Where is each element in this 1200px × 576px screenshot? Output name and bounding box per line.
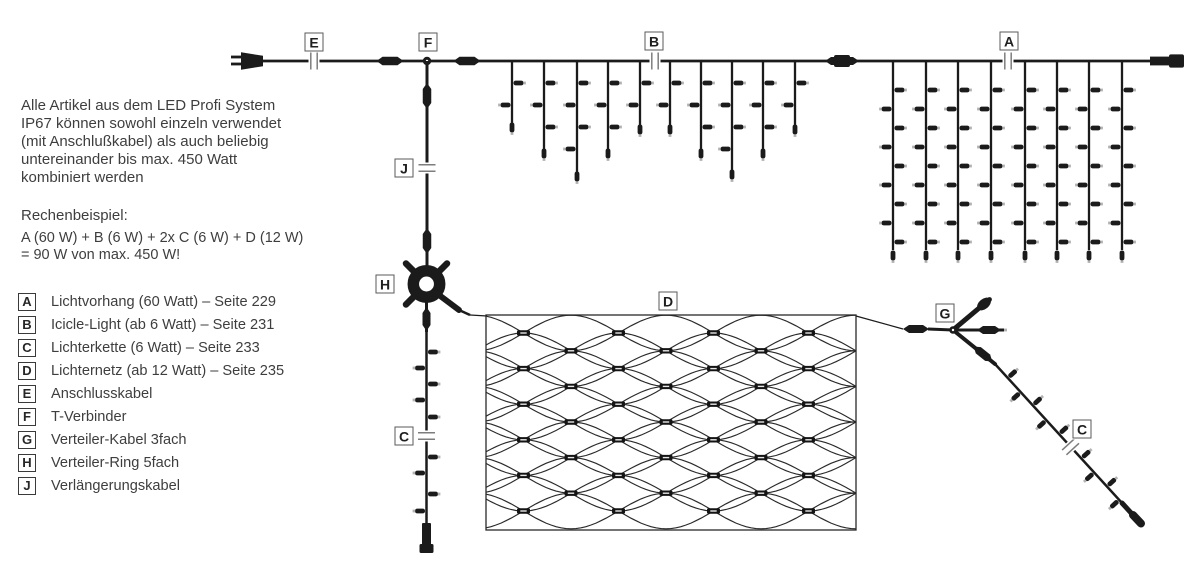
verlaengerungskabel-j [417,61,437,266]
led-bulb-icon [802,366,815,371]
cable-connector-icon [454,57,481,66]
led-bulb-icon [1009,391,1021,403]
led-bulb-icon [638,125,643,137]
led-bulb-icon [413,366,425,371]
led-bulb-icon [1091,88,1103,93]
led-bulb-icon [579,125,591,130]
intro-line: IP67 können sowohl einzeln verwendet [21,115,351,133]
legend-row-e: E Anschlusskabel [18,382,284,405]
led-bulb-icon [928,126,940,131]
led-bulb-icon [960,126,972,131]
led-bulb-icon [993,164,1005,169]
verteiler-ring-h [406,263,487,332]
led-bulb-icon [610,125,622,130]
led-bulb-icon [517,366,530,371]
led-bulb-icon [1075,107,1087,112]
intro-text: Alle Artikel aus dem LED Profi System IP… [21,97,351,187]
legend-label-h: Verteiler-Ring 5fach [51,455,179,471]
diagram-label-c2: C [1073,420,1092,439]
led-bulb-icon [912,145,924,150]
led-bulb-icon [1007,367,1019,379]
led-bulb-icon [626,103,638,108]
led-bulb-icon [1082,472,1094,484]
led-bulb-icon [707,508,720,513]
led-bulb-icon [563,147,575,152]
led-bulb-icon [960,240,972,245]
cable-break-icon [417,163,437,174]
led-bulb-icon [563,103,575,108]
calc-example-result: = 90 W von max. 450 W! [21,247,180,263]
led-bulb-icon [1011,145,1023,150]
led-bulb-icon [656,103,668,108]
led-bulb-icon [1107,499,1119,511]
led-bulb-icon [413,509,425,514]
led-bulb-icon [1087,251,1092,263]
led-bulb-icon [1124,126,1136,131]
intro-line: untereinander bis max. 450 Watt [21,151,351,169]
legend-key-a: A [18,293,36,311]
led-bulb-icon [793,125,798,137]
cable-connector-icon [423,228,432,254]
led-bulb-icon [517,330,530,335]
led-bulb-icon [993,126,1005,131]
led-bulb-icon [579,81,591,86]
cable-break-icon [417,431,437,442]
legend-row-j: J Verlängerungskabel [18,474,284,497]
cable-break-icon [1003,51,1014,71]
led-bulb-icon [802,330,815,335]
led-bulb-icon [510,123,515,135]
legend-label-c: Lichterkette (6 Watt) – Seite 233 [51,340,260,356]
cable-connector-icon [977,326,1001,334]
led-bulb-icon [1059,202,1071,207]
calc-example-title: Rechenbeispiel: [21,207,128,224]
led-bulb-icon [802,437,815,442]
led-bulb-icon [891,251,896,263]
led-bulb-icon [1043,145,1055,150]
led-bulb-icon [960,164,972,169]
led-bulb-icon [668,125,673,137]
led-bulb-icon [612,402,625,407]
cable-connector-icon [423,307,431,331]
led-bulb-icon [699,149,704,161]
led-bulb-icon [1011,183,1023,188]
led-bulb-icon [413,398,425,403]
led-bulb-icon [565,491,578,496]
led-bulb-icon [703,125,715,130]
led-bulb-icon [594,103,606,108]
led-bulb-icon [944,183,956,188]
led-bulb-icon [924,251,929,263]
led-bulb-icon [755,348,768,353]
icicle-light-b [498,61,809,184]
led-bulb-icon [1059,88,1071,93]
cable-connector-icon [825,55,859,67]
led-bulb-icon [781,103,793,108]
led-bulb-icon [542,149,547,161]
led-bulb-icon [734,125,746,130]
led-bulb-icon [1059,240,1071,245]
led-bulb-icon [977,183,989,188]
led-bulb-icon [993,240,1005,245]
main-cable-assembly [231,51,1184,71]
intro-line: (mit Anschlußkabel) als auch beliebig [21,133,351,151]
led-bulb-icon [1081,447,1093,459]
diagram-label-h: H [376,275,395,294]
led-bulb-icon [1124,202,1136,207]
led-bulb-icon [960,88,972,93]
led-bulb-icon [1091,164,1103,169]
led-bulb-icon [707,330,720,335]
legend-row-h: H Verteiler-Ring 5fach [18,451,284,474]
led-bulb-icon [1027,240,1039,245]
led-bulb-icon [1091,126,1103,131]
led-bulb-icon [977,145,989,150]
led-bulb-icon [612,473,625,478]
led-bulb-icon [944,221,956,226]
led-bulb-icon [610,81,622,86]
led-bulb-icon [517,473,530,478]
led-bulb-icon [895,126,907,131]
led-bulb-icon [1106,475,1118,487]
led-bulb-icon [1034,419,1046,431]
legend-key-j: J [18,477,36,495]
led-bulb-icon [612,437,625,442]
legend-row-f: F T-Verbinder [18,405,284,428]
led-bulb-icon [687,103,699,108]
led-bulb-icon [944,107,956,112]
led-bulb-icon [956,251,961,263]
cable-break-icon [650,51,661,71]
led-bulb-icon [797,81,809,86]
led-bulb-icon [802,473,815,478]
led-bulb-icon [755,419,768,424]
led-bulb-icon [1043,183,1055,188]
led-bulb-icon [707,366,720,371]
led-bulb-icon [761,149,766,161]
led-bulb-icon [1059,126,1071,131]
led-bulb-icon [546,125,558,130]
diagram-label-d: D [659,292,678,311]
legend-row-a: A Lichtvorhang (60 Watt) – Seite 229 [18,290,284,313]
led-bulb-icon [989,251,994,263]
led-bulb-icon [565,455,578,460]
legend-label-g: Verteiler-Kabel 3fach [51,432,186,448]
lichternetz-d [486,315,856,530]
led-bulb-icon [977,221,989,226]
led-bulb-icon [944,145,956,150]
led-bulb-icon [1124,88,1136,93]
led-bulb-icon [565,348,578,353]
led-bulb-icon [428,382,440,387]
led-bulb-icon [895,240,907,245]
verteiler-kabel-g [856,295,1007,365]
legend-key-e: E [18,385,36,403]
led-bulb-icon [928,202,940,207]
led-bulb-icon [1075,221,1087,226]
legend-key-d: D [18,362,36,380]
led-bulb-icon [660,419,673,424]
led-bulb-icon [765,81,777,86]
led-bulb-icon [730,170,735,182]
led-bulb-icon [879,183,891,188]
led-bulb-icon [879,145,891,150]
legend-label-b: Icicle-Light (ab 6 Watt) – Seite 231 [51,317,274,333]
led-bulb-icon [1059,423,1071,435]
calc-example-formula: A (60 W) + B (6 W) + 2x C (6 W) + D (12 … [21,230,303,246]
legend-label-e: Anschlusskabel [51,386,152,402]
led-bulb-icon [1011,221,1023,226]
led-bulb-icon [765,125,777,130]
led-bulb-icon [1043,107,1055,112]
led-bulb-icon [660,384,673,389]
legend-label-f: T-Verbinder [51,409,126,425]
led-bulb-icon [660,348,673,353]
led-bulb-icon [1027,202,1039,207]
cable-break-icon [309,51,320,71]
led-bulb-icon [879,221,891,226]
led-bulb-icon [707,437,720,442]
led-bulb-icon [428,415,440,420]
led-bulb-icon [707,473,720,478]
led-bulb-icon [1032,394,1044,406]
led-bulb-icon [612,508,625,513]
led-bulb-icon [498,103,510,108]
cable-connector-icon [377,57,404,66]
led-bulb-icon [612,366,625,371]
lichterkette-c-vertical [413,307,441,553]
legend-key-h: H [18,454,36,472]
led-bulb-icon [660,491,673,496]
led-bulb-icon [428,350,440,355]
cable-connector-icon [423,83,432,109]
led-bulb-icon [546,81,558,86]
led-bulb-icon [642,81,654,86]
led-bulb-icon [1108,145,1120,150]
lichtvorhang-a [879,61,1136,263]
legend-label-d: Lichternetz (ab 12 Watt) – Seite 235 [51,363,284,379]
led-bulb-icon [1124,240,1136,245]
led-bulb-icon [749,103,761,108]
led-bulb-icon [1043,221,1055,226]
led-bulb-icon [517,508,530,513]
led-bulb-icon [993,88,1005,93]
led-bulb-icon [514,81,526,86]
led-bulb-icon [755,455,768,460]
led-bulb-icon [895,202,907,207]
legend-label-j: Verlängerungskabel [51,478,180,494]
led-bulb-icon [755,384,768,389]
led-bulb-icon [612,330,625,335]
led-bulb-icon [1027,164,1039,169]
led-bulb-icon [928,88,940,93]
led-bulb-icon [707,402,720,407]
led-bulb-icon [734,81,746,86]
led-bulb-icon [1055,251,1060,263]
led-bulb-icon [428,455,440,460]
led-bulb-icon [718,103,730,108]
led-bulb-icon [1027,126,1039,131]
legend-row-d: D Lichternetz (ab 12 Watt) – Seite 235 [18,359,284,382]
led-bulb-icon [802,402,815,407]
led-bulb-icon [1075,183,1087,188]
diagram-label-a: A [1000,32,1019,51]
led-bulb-icon [912,221,924,226]
led-bulb-icon [660,455,673,460]
led-bulb-icon [517,437,530,442]
led-bulb-icon [703,81,715,86]
cable-connector-icon [1150,54,1184,67]
led-bulb-icon [1124,164,1136,169]
led-bulb-icon [718,147,730,152]
led-bulb-icon [1108,221,1120,226]
led-bulb-icon [428,492,440,497]
led-bulb-icon [1059,164,1071,169]
cable-connector-icon [903,325,929,333]
diagram-label-f: F [419,33,438,52]
led-bulb-icon [993,202,1005,207]
led-bulb-icon [755,491,768,496]
legend-key-c: C [18,339,36,357]
led-bulb-icon [530,103,542,108]
led-bulb-icon [1091,202,1103,207]
legend-key-f: F [18,408,36,426]
legend-row-c: C Lichterkette (6 Watt) – Seite 233 [18,336,284,359]
led-bulb-icon [565,419,578,424]
led-bulb-icon [1120,251,1125,263]
intro-line: Alle Artikel aus dem LED Profi System [21,97,351,115]
legend-key-g: G [18,431,36,449]
catalog-illustration-page: Alle Artikel aus dem LED Profi System IP… [0,0,1200,576]
led-bulb-icon [1023,251,1028,263]
legend: A Lichtvorhang (60 Watt) – Seite 229 B I… [18,290,284,497]
led-bulb-icon [1108,107,1120,112]
led-bulb-icon [912,183,924,188]
led-bulb-icon [912,107,924,112]
led-bulb-icon [960,202,972,207]
led-bulb-icon [1108,183,1120,188]
led-bulb-icon [1011,107,1023,112]
lichterkette-c-diagonal [995,364,1141,524]
legend-row-b: B Icicle-Light (ab 6 Watt) – Seite 231 [18,313,284,336]
led-bulb-icon [928,240,940,245]
led-bulb-icon [895,88,907,93]
diagram-label-b: B [645,32,664,51]
led-bulb-icon [672,81,684,86]
legend-row-g: G Verteiler-Kabel 3fach [18,428,284,451]
intro-line: kombiniert werden [21,169,351,187]
led-bulb-icon [1091,240,1103,245]
led-bulb-icon [977,107,989,112]
led-bulb-icon [895,164,907,169]
legend-label-a: Lichtvorhang (60 Watt) – Seite 229 [51,294,276,310]
legend-key-b: B [18,316,36,334]
led-bulb-icon [928,164,940,169]
diagram-label-c1: C [395,427,414,446]
diagram-label-j: J [395,159,414,178]
diagram-label-e: E [305,33,324,52]
mains-plug-icon [231,52,263,69]
led-bulb-icon [575,172,580,184]
led-bulb-icon [1027,88,1039,93]
led-bulb-icon [565,384,578,389]
led-bulb-icon [517,402,530,407]
led-bulb-icon [606,149,611,161]
led-bulb-icon [879,107,891,112]
distributor-3way-icon [949,326,957,334]
led-bulb-icon [1075,145,1087,150]
led-bulb-icon [413,471,425,476]
diagram-label-g: G [936,304,955,323]
led-bulb-icon [802,508,815,513]
